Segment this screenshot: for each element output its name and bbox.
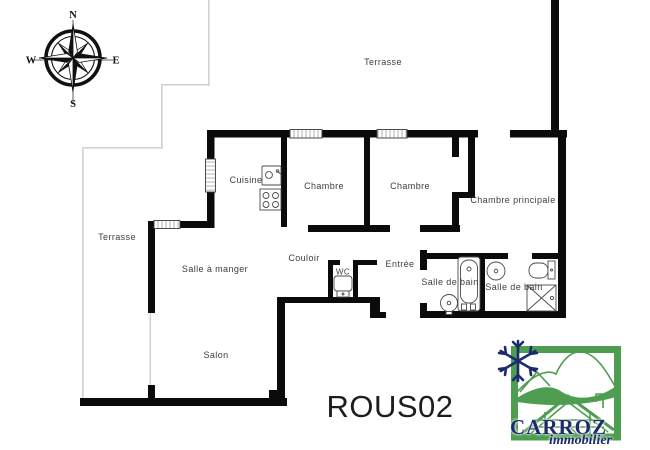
sink-icon-2: [487, 262, 505, 280]
agency-logo: CARROZ immobilier: [492, 333, 642, 448]
room-label-chambre-principale: Chambre principale: [470, 195, 555, 205]
room-label-entree: Entrée: [386, 259, 415, 269]
room-label-couloir: Couloir: [288, 253, 319, 263]
floor-plan-page: N E S W Terrasse Cuisine Chambre Chambre…: [0, 0, 650, 450]
room-label-salon: Salon: [203, 350, 228, 360]
toilet-icon-2: [529, 261, 555, 279]
room-label-cuisine: Cuisine: [230, 175, 263, 185]
room-label-salle-de-bain-2: Salle de bain: [485, 282, 542, 292]
logo-tagline-text: immobilier: [549, 433, 612, 449]
compass-north-label: N: [69, 10, 77, 21]
window-symbol: [290, 130, 322, 139]
room-label-salle-de-bain-1: Salle de bain: [421, 277, 478, 287]
window-symbol: [154, 221, 180, 229]
room-label-terrasse-top: Terrasse: [364, 57, 402, 67]
plan-reference: ROUS02: [326, 389, 453, 425]
compass-south-label: S: [70, 99, 76, 110]
room-label-salle-a-manger: Salle à manger: [182, 264, 248, 274]
room-label-wc: WC: [336, 268, 350, 277]
kitchen-sink-icon: [262, 166, 281, 185]
room-label-chambre-1: Chambre: [304, 181, 344, 191]
compass-rose-icon: N E S W: [26, 10, 120, 110]
room-label-terrasse-left: Terrasse: [98, 232, 136, 242]
room-label-chambre-2: Chambre: [390, 181, 430, 191]
snowflake-icon: [499, 341, 537, 381]
window-symbol: [206, 159, 216, 192]
compass-east-label: E: [112, 56, 119, 67]
toilet-icon: [334, 276, 352, 297]
compass-west-label: W: [26, 56, 37, 67]
window-symbol: [377, 130, 407, 139]
stove-icon: [260, 189, 281, 210]
